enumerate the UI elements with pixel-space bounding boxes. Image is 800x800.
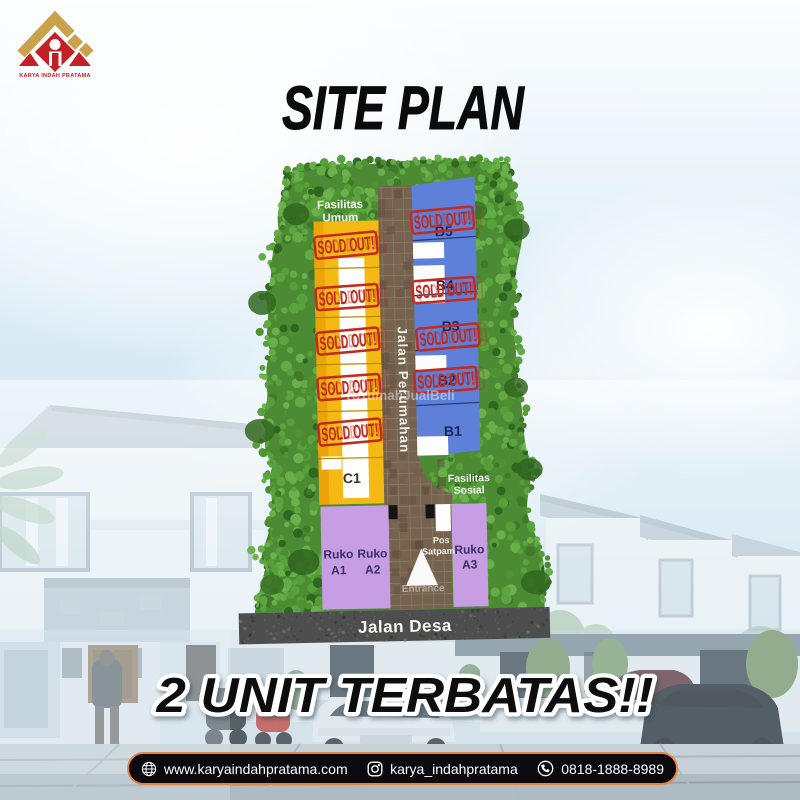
svg-text:Satpam: Satpam bbox=[422, 546, 455, 557]
svg-text:Entrance: Entrance bbox=[402, 583, 445, 595]
svg-text:2 UNIT TERBATAS!!: 2 UNIT TERBATAS!! bbox=[155, 669, 653, 723]
svg-text:Fasilitas: Fasilitas bbox=[448, 472, 490, 485]
svg-text:Pos: Pos bbox=[433, 535, 450, 545]
svg-text:Sosial: Sosial bbox=[454, 484, 485, 497]
svg-text:umahJualBeli: umahJualBeli bbox=[367, 388, 455, 403]
svg-text:Jalan Desa: Jalan Desa bbox=[358, 616, 452, 637]
svg-text:A1: A1 bbox=[331, 563, 347, 577]
svg-text:Fasilitas: Fasilitas bbox=[317, 199, 363, 212]
svg-text:A2: A2 bbox=[365, 562, 381, 576]
svg-text:Ruko: Ruko bbox=[323, 547, 353, 562]
svg-text:Umum: Umum bbox=[322, 212, 358, 225]
svg-text:B1: B1 bbox=[444, 423, 462, 439]
svg-text:Ruko: Ruko bbox=[357, 546, 387, 561]
svg-text:SITE PLAN: SITE PLAN bbox=[282, 74, 525, 142]
svg-text:W: W bbox=[352, 392, 361, 402]
svg-text:C1: C1 bbox=[343, 470, 361, 486]
svg-text:Ruko: Ruko bbox=[454, 542, 484, 557]
svg-text:A3: A3 bbox=[462, 557, 478, 571]
